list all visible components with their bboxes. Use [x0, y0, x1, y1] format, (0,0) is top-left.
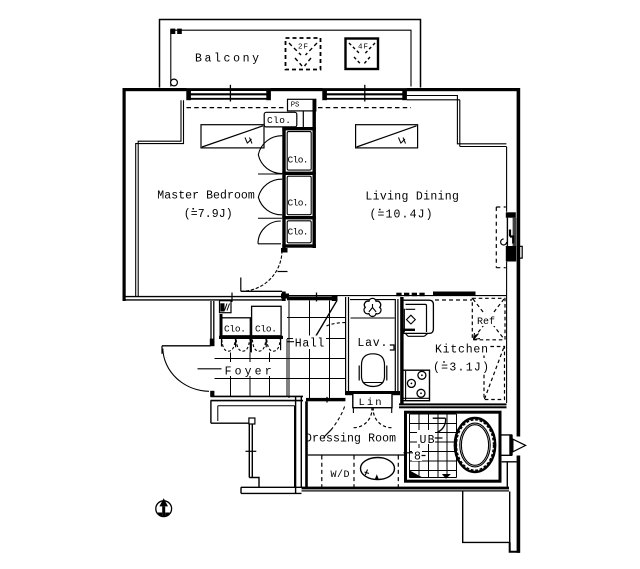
svg-text:UB: UB	[420, 434, 435, 447]
svg-text:Clo.: Clo.	[224, 323, 246, 334]
svg-text:Ref: Ref	[477, 316, 495, 328]
svg-text:Clo.: Clo.	[288, 155, 309, 166]
svg-text:(=7.9J): (=7.9J)	[184, 208, 233, 221]
svg-text:(=10.4J): (=10.4J)	[370, 209, 433, 222]
svg-text:Dressing Room: Dressing Room	[305, 433, 396, 446]
svg-text:Lav.: Lav.	[357, 337, 387, 350]
svg-text:Living Dining: Living Dining	[365, 191, 459, 204]
svg-text:W/D: W/D	[331, 469, 350, 481]
svg-text:Clo.: Clo.	[288, 227, 309, 238]
svg-text:Balcony: Balcony	[195, 52, 259, 65]
svg-text:Master Bedroom: Master Bedroom	[157, 189, 255, 202]
svg-text:PS: PS	[291, 101, 300, 109]
svg-text:Clo.: Clo.	[255, 323, 277, 334]
svg-text:Kitchen: Kitchen	[435, 343, 488, 356]
svg-text:8: 8	[414, 450, 421, 463]
svg-text:Lin: Lin	[359, 397, 382, 409]
svg-text:(=3.1J): (=3.1J)	[433, 361, 489, 374]
svg-text:Hall: Hall	[295, 337, 325, 350]
svg-text:4F: 4F	[358, 44, 368, 52]
svg-text:2F: 2F	[298, 44, 308, 52]
svg-text:Clo.: Clo.	[267, 115, 291, 126]
svg-text:Clo.: Clo.	[288, 198, 309, 209]
